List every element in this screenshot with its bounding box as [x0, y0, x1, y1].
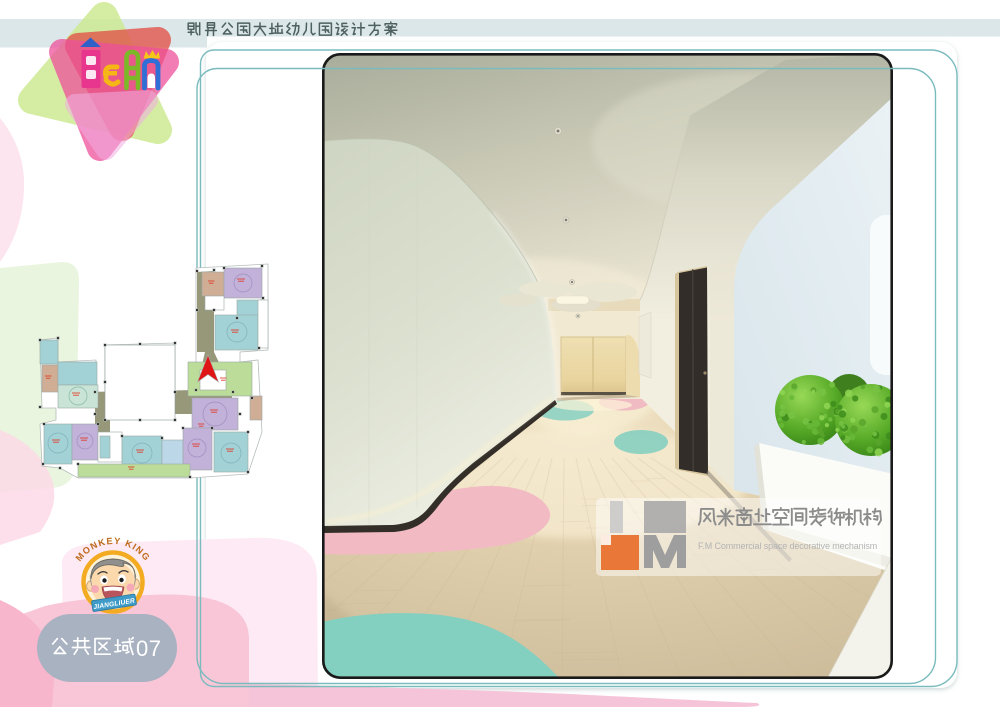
svg-text:07: 07 [136, 636, 161, 661]
svg-text:F.M Commercial space decorativ: F.M Commercial space decorative mechanis… [698, 541, 877, 551]
